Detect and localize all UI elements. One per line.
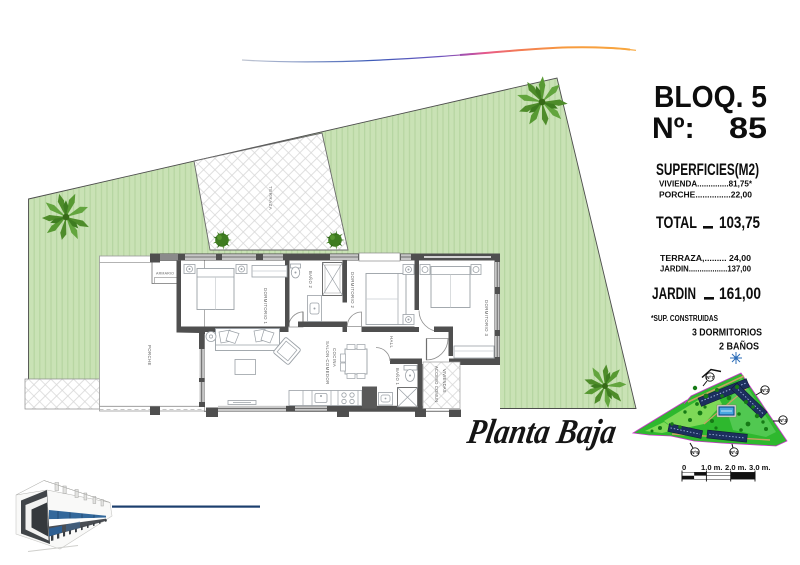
svg-text:JARDIN: JARDIN [652, 284, 696, 303]
svg-text:SUPERFICIES(M2): SUPERFICIES(M2) [656, 161, 759, 179]
svg-text:TERRAZA: TERRAZA [268, 186, 273, 211]
svg-text:0: 0 [682, 463, 686, 472]
svg-text:Nº7: Nº7 [706, 375, 714, 380]
svg-text:TOTAL: TOTAL [656, 213, 697, 232]
svg-text:DORMITORIO 1: DORMITORIO 1 [263, 288, 268, 324]
svg-text:BAÑO 2: BAÑO 2 [308, 271, 313, 289]
svg-text:TERRAZA,......... 24,00: TERRAZA,......... 24,00 [660, 253, 751, 263]
svg-text:SALON-COMEDOR: SALON-COMEDOR [325, 341, 330, 385]
svg-text:BLOQ. 5: BLOQ. 5 [654, 79, 767, 114]
svg-text:161,00: 161,00 [719, 284, 761, 303]
svg-text:103,75: 103,75 [719, 213, 760, 232]
svg-text:2 BAÑOS: 2 BAÑOS [719, 340, 759, 353]
svg-text:Nº3: Nº3 [779, 418, 787, 423]
svg-text:DORMITORIO 3: DORMITORIO 3 [484, 300, 489, 336]
svg-text:Planta Baja: Planta Baja [464, 412, 620, 451]
svg-text:PORCHE: PORCHE [147, 345, 152, 366]
svg-text:BAÑO 1: BAÑO 1 [395, 368, 400, 386]
svg-text:3 DORMITORIOS: 3 DORMITORIOS [692, 327, 762, 339]
svg-text:Nº4: Nº4 [730, 450, 738, 455]
svg-text:Nº5: Nº5 [691, 450, 699, 455]
svg-text:COCINA: COCINA [332, 348, 337, 367]
svg-text:1.0 m.: 1.0 m. [701, 463, 723, 472]
svg-text:DORMITORIO 2: DORMITORIO 2 [350, 272, 355, 308]
svg-text:PORCHE...............22,00: PORCHE...............22,00 [659, 190, 752, 200]
svg-text:*SUP. CONSTRUIDAS: *SUP. CONSTRUIDAS [651, 314, 718, 323]
svg-text:VIVIENDA..............81,75*: VIVIENDA..............81,75* [659, 179, 753, 189]
svg-text:ACCESO COMUN: ACCESO COMUN [434, 366, 439, 402]
svg-text:HALL: HALL [389, 336, 394, 349]
svg-text:2.0 m.: 2.0 m. [725, 463, 747, 472]
svg-text:Nº2: Nº2 [761, 388, 769, 393]
svg-text:85: 85 [729, 112, 767, 145]
svg-text:JARDIN..................137,00: JARDIN..................137,00 [660, 264, 751, 274]
svg-text:ARMARIO: ARMARIO [156, 272, 174, 276]
svg-text:3.0 m.: 3.0 m. [749, 463, 771, 472]
svg-text:VIVIENDAS: VIVIENDAS [442, 369, 447, 393]
svg-text:Nº:: Nº: [652, 112, 695, 145]
